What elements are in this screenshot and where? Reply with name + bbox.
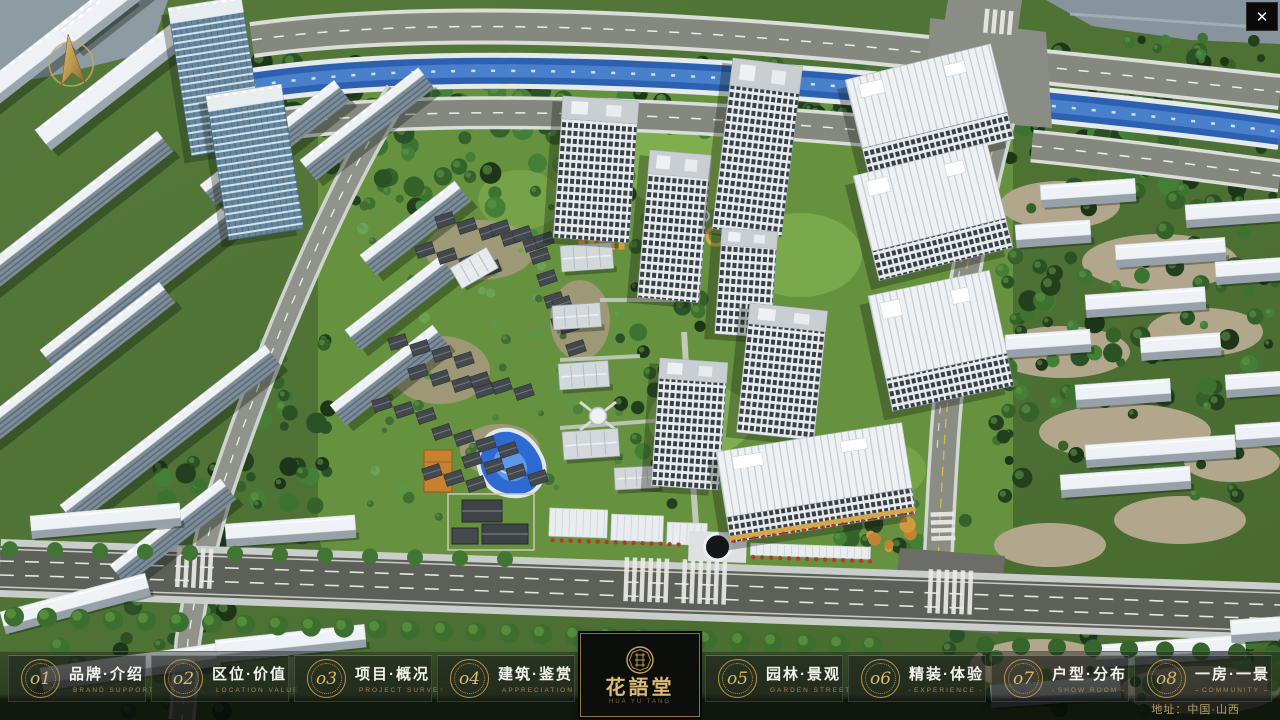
menu-item-number: o6 (870, 669, 891, 689)
menu-item-number-badge: o5 (718, 659, 757, 698)
subtitle-rule-left (1195, 690, 1198, 691)
menu-item-number: o2 (173, 669, 194, 689)
menu-item-o8[interactable]: o8 一房·一景 COMMUNITY (1134, 655, 1272, 702)
menu-item-number-badge: o7 (1004, 659, 1043, 698)
menu-item-title: 品牌·介绍 (69, 663, 141, 684)
nav-group-right: o5 园林·景观 GARDEN STREET o6 精装·体验 EXPERIEN… (705, 655, 1272, 702)
bottom-navigation-bar: o1 品牌·介绍 BRAND SUPPORT o2 区位·价值 LOCATION (0, 651, 1280, 720)
menu-item-number: o3 (316, 669, 337, 689)
menu-item-number-badge: o8 (1147, 659, 1186, 698)
menu-item-number-badge: o6 (861, 659, 900, 698)
nav-group-left: o1 品牌·介绍 BRAND SUPPORT o2 区位·价值 LOCATION (8, 655, 575, 702)
project-name: 花語堂 (606, 677, 675, 697)
seal-emblem-icon (625, 645, 655, 675)
menu-item-o2[interactable]: o2 区位·价值 LOCATION VALUE (151, 655, 289, 702)
subtitle-rule-left (1052, 690, 1054, 691)
menu-item-title: 户型·分布 (1052, 663, 1124, 684)
menu-item-number: o8 (1156, 669, 1177, 689)
menu-item-title: 建筑·鉴赏 (498, 663, 570, 684)
menu-item-subtitle: SHOW ROOM (1052, 687, 1124, 694)
project-name-latin: HUA YU TANG (609, 699, 671, 705)
project-logo[interactable]: 花語堂 HUA YU TANG (580, 633, 700, 717)
menu-item-subtitle: BRAND SUPPORT (69, 687, 141, 694)
menu-item-title: 区位·价值 (212, 663, 284, 684)
menu-item-o4[interactable]: o4 建筑·鉴赏 APPRECIATION (437, 655, 575, 702)
subtitle-rule-right (1122, 690, 1124, 691)
subtitle-rule-left (909, 690, 910, 691)
close-button[interactable]: ✕ (1246, 2, 1278, 31)
menu-item-number: o5 (727, 669, 748, 689)
menu-item-subtitle: GARDEN STREET (766, 687, 838, 694)
subtitle-rule-right (980, 690, 981, 691)
presentation-window: ✕ o1 品牌·介绍 BRAND SUPPORT o2 区 (0, 0, 1280, 720)
subtitle-rule-right (1264, 690, 1267, 691)
menu-item-number-badge: o2 (164, 659, 203, 698)
menu-item-o1[interactable]: o1 品牌·介绍 BRAND SUPPORT (8, 655, 146, 702)
masterplan-3d-view[interactable] (0, 0, 1280, 720)
menu-item-number-badge: o3 (307, 659, 346, 698)
menu-item-number-badge: o4 (450, 659, 489, 698)
menu-item-subtitle: COMMUNITY (1195, 687, 1267, 694)
menu-item-subtitle: APPRECIATION (498, 687, 570, 694)
menu-item-number: o4 (459, 669, 480, 689)
menu-item-o3[interactable]: o3 项目·概况 PROJECT SURVEY (294, 655, 432, 702)
menu-item-title: 园林·景观 (766, 663, 838, 684)
menu-item-subtitle: EXPERIENCE (909, 687, 981, 694)
menu-item-o5[interactable]: o5 园林·景观 GARDEN STREET (705, 655, 843, 702)
menu-item-subtitle: PROJECT SURVEY (355, 687, 427, 694)
menu-item-o7[interactable]: o7 户型·分布 SHOW ROOM (991, 655, 1129, 702)
menu-item-number-badge: o1 (21, 659, 60, 698)
menu-item-title: 项目·概况 (355, 663, 427, 684)
menu-item-o6[interactable]: o6 精装·体验 EXPERIENCE (848, 655, 986, 702)
project-address: 地址：中国·山西 (1151, 701, 1240, 717)
menu-item-number: o7 (1013, 669, 1034, 689)
menu-item-title: 一房·一景 (1195, 663, 1267, 684)
close-icon: ✕ (1256, 8, 1269, 26)
north-compass-icon (38, 26, 104, 98)
menu-item-title: 精装·体验 (909, 663, 981, 684)
menu-item-number: o1 (30, 669, 51, 689)
menu-item-subtitle: LOCATION VALUE (212, 687, 284, 694)
